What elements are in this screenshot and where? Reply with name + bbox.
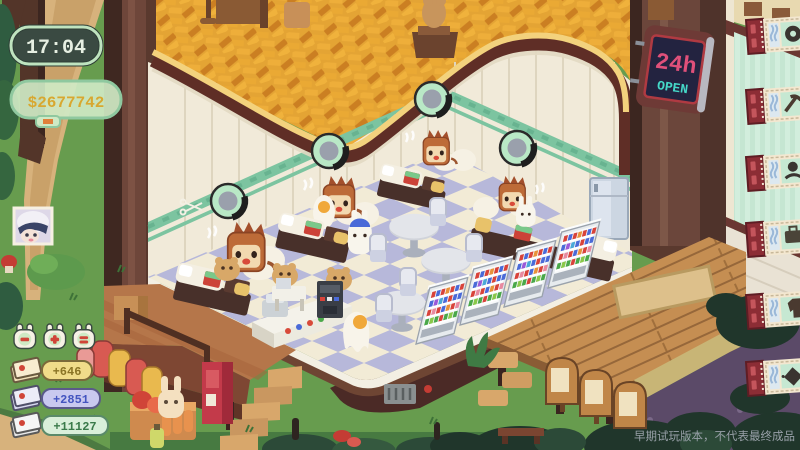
svg-text:+11127: +11127 [53, 420, 96, 434]
svg-text:$2677742: $2677742 [28, 94, 105, 112]
svg-text:+2851: +2851 [53, 393, 89, 407]
svg-text:17:04: 17:04 [26, 37, 86, 60]
svg-text:+646: +646 [53, 365, 82, 379]
svg-text:早期试玩版本，不代表最终成品: 早期试玩版本，不代表最终成品 [634, 429, 795, 443]
